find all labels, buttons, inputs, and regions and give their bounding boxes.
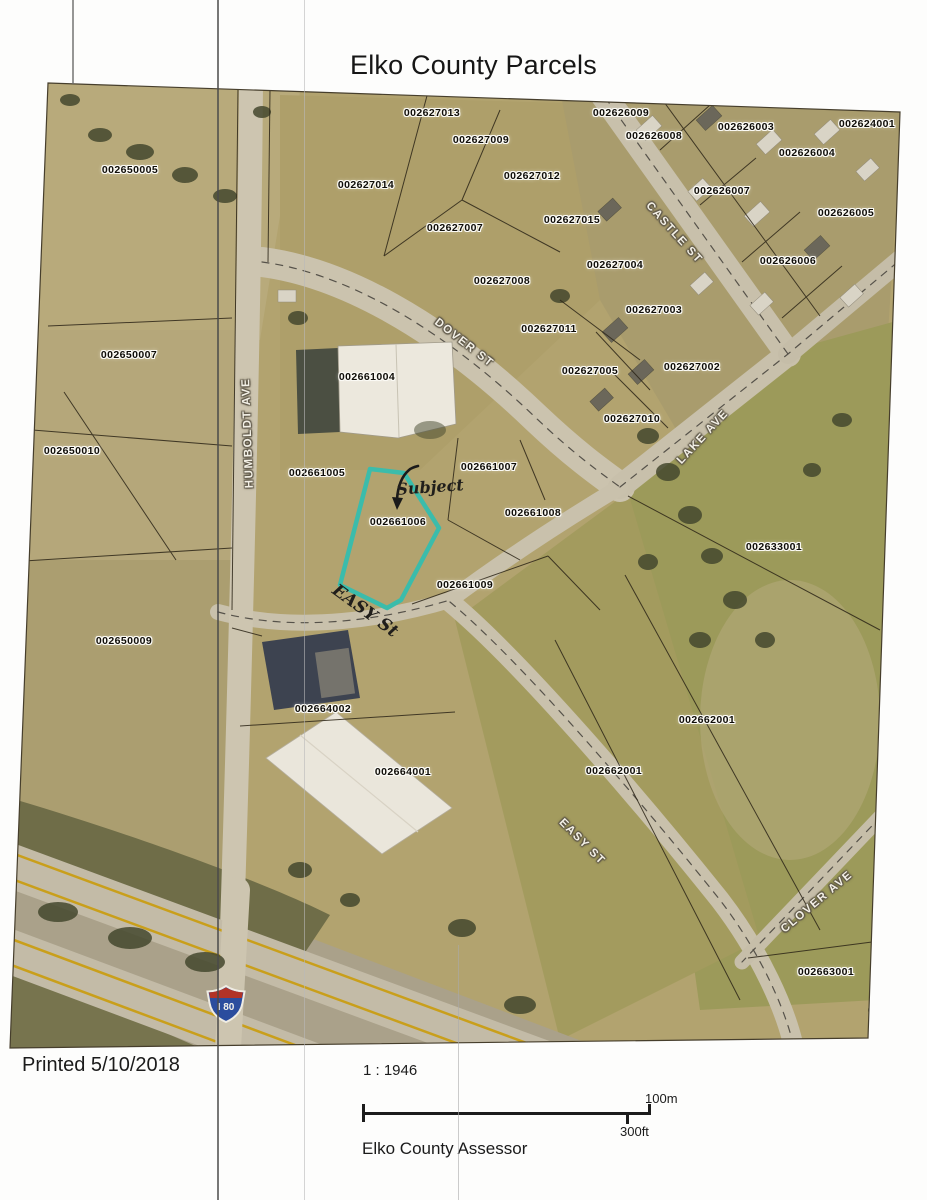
parcel-label: 002626009 <box>593 107 649 119</box>
parcel-label: 002661004 <box>339 371 395 383</box>
parcel-label: 002661009 <box>437 579 493 591</box>
handwritten-annotation: EASY St <box>328 580 402 641</box>
scale-feet-label: 300ft <box>620 1124 649 1139</box>
parcel-label: 002627015 <box>544 214 600 226</box>
parcel-label: 002627009 <box>453 134 509 146</box>
parcel-label: 002664001 <box>375 766 431 778</box>
parcel-label: 002626004 <box>779 147 835 159</box>
parcel-label: 002626003 <box>718 121 774 133</box>
parcel-label: 002627012 <box>504 170 560 182</box>
handwritten-annotation: Subject <box>396 475 465 499</box>
map-source: Elko County Assessor <box>362 1139 527 1159</box>
parcel-label: 002627004 <box>587 259 643 271</box>
street-label: HUMBOLDT AVE <box>240 378 256 489</box>
parcel-label: 002627005 <box>562 365 618 377</box>
parcel-label: 002661006 <box>370 516 426 528</box>
scale-meters-label: 100m <box>645 1091 678 1106</box>
parcel-label: 002624001 <box>839 118 895 130</box>
street-label: DOVER ST <box>432 316 496 370</box>
street-label: EASY ST <box>556 816 607 867</box>
parcel-label: 002633001 <box>746 541 802 553</box>
parcel-label: 002627008 <box>474 275 530 287</box>
street-label: LAKE AVE <box>675 407 731 466</box>
printed-date: Printed 5/10/2018 <box>22 1054 180 1077</box>
parcel-label: 002626007 <box>694 185 750 197</box>
parcel-label: 002650007 <box>101 349 157 361</box>
parcel-label: 002627011 <box>521 323 577 335</box>
parcel-label: 002662001 <box>679 714 735 726</box>
scan-artifact-line <box>72 0 74 84</box>
scale-bar-left-tick <box>362 1104 365 1122</box>
parcel-label: 002627002 <box>664 361 720 373</box>
parcel-label: 002661008 <box>505 507 561 519</box>
parcel-label: 002663001 <box>798 966 854 978</box>
parcel-label: 002661007 <box>461 461 517 473</box>
shield-route-number: I 80 <box>218 1002 235 1013</box>
scanned-parcel-map-page: Elko County Parcels <box>0 0 927 1200</box>
parcel-label: 002627013 <box>404 107 460 119</box>
scan-artifact-line <box>217 0 219 1200</box>
parcel-label: 002627003 <box>626 304 682 316</box>
parcel-label: 002627010 <box>604 413 660 425</box>
parcel-label: 002626008 <box>626 130 682 142</box>
scale-bar-feet-tick <box>626 1113 629 1124</box>
parcel-label: 002650009 <box>96 635 152 647</box>
parcel-label: 002626005 <box>818 207 874 219</box>
parcel-label: 002650005 <box>102 164 158 176</box>
parcel-label: 002626006 <box>760 255 816 267</box>
parcel-label: 002650010 <box>44 445 100 457</box>
scan-artifact-line <box>458 945 459 1200</box>
street-label: CLOVER AVE <box>779 869 855 936</box>
parcel-label: 002662001 <box>586 765 642 777</box>
parcel-label: 002627014 <box>338 179 394 191</box>
scale-ratio: 1 : 1946 <box>363 1062 417 1079</box>
scan-artifact-line <box>304 0 305 1200</box>
interstate-80-shield: I 80 <box>205 984 247 1024</box>
parcel-label: 002627007 <box>427 222 483 234</box>
street-label: CASTLE ST <box>643 200 704 266</box>
scale-bar <box>362 1112 651 1115</box>
map-labels-layer: 0026270130026260090026260030026240010026… <box>0 0 927 1200</box>
parcel-label: 002661005 <box>289 467 345 479</box>
